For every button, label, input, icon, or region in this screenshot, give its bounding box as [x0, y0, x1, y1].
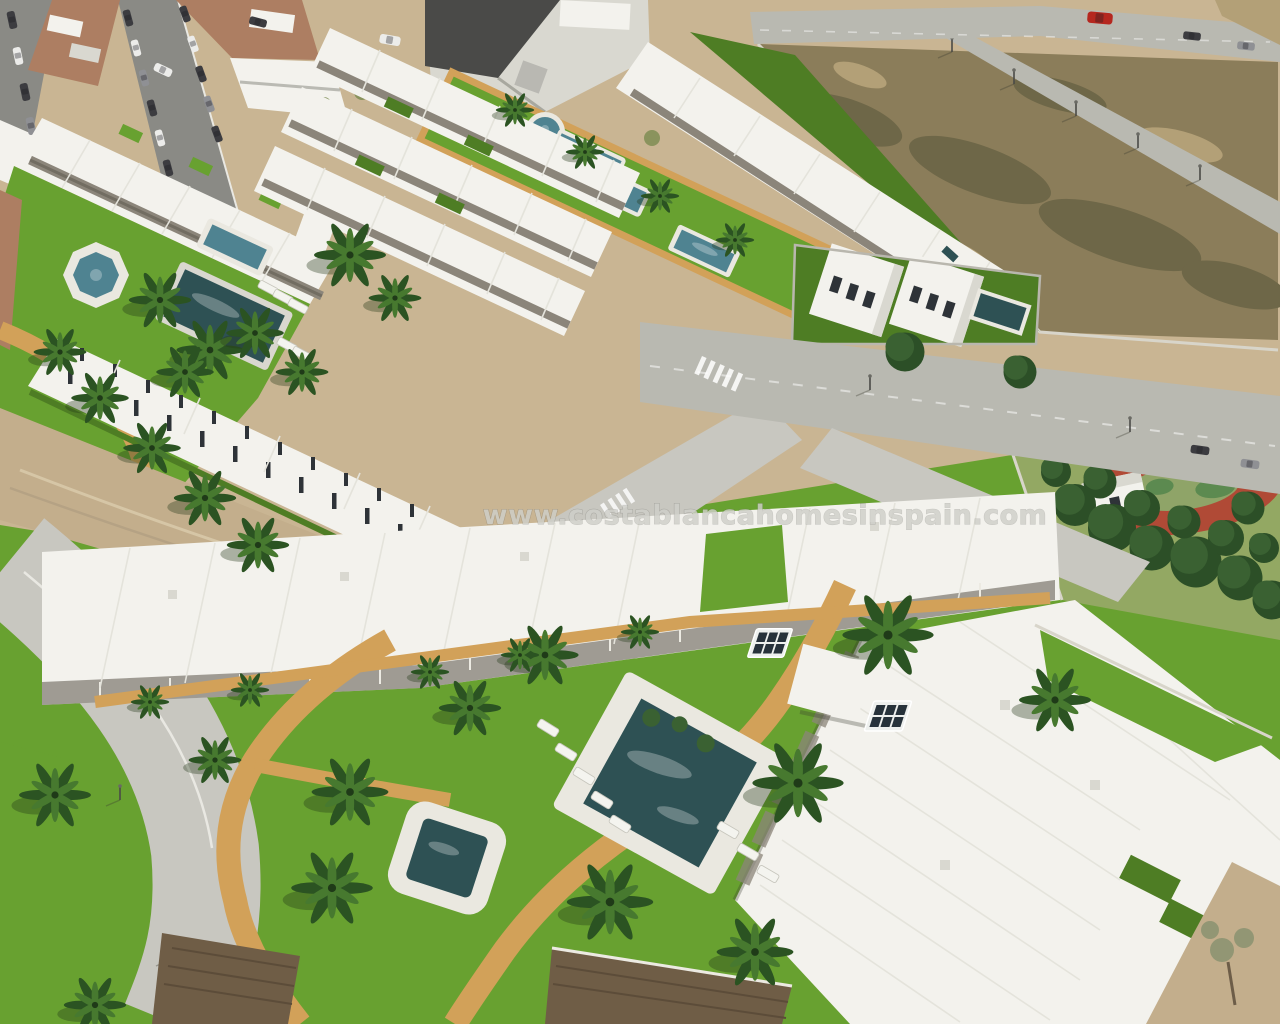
street-tree — [1004, 356, 1037, 389]
street-tree — [886, 333, 925, 372]
aerial-development-render: www.costablancahomesinspain.com — [0, 0, 1280, 1024]
watermark-text: www.costablancahomesinspain.com — [483, 500, 1048, 531]
scene-canvas: www.costablancahomesinspain.com — [0, 0, 1280, 1024]
red-van — [1087, 11, 1113, 25]
north-row-gap-garden — [700, 525, 788, 612]
